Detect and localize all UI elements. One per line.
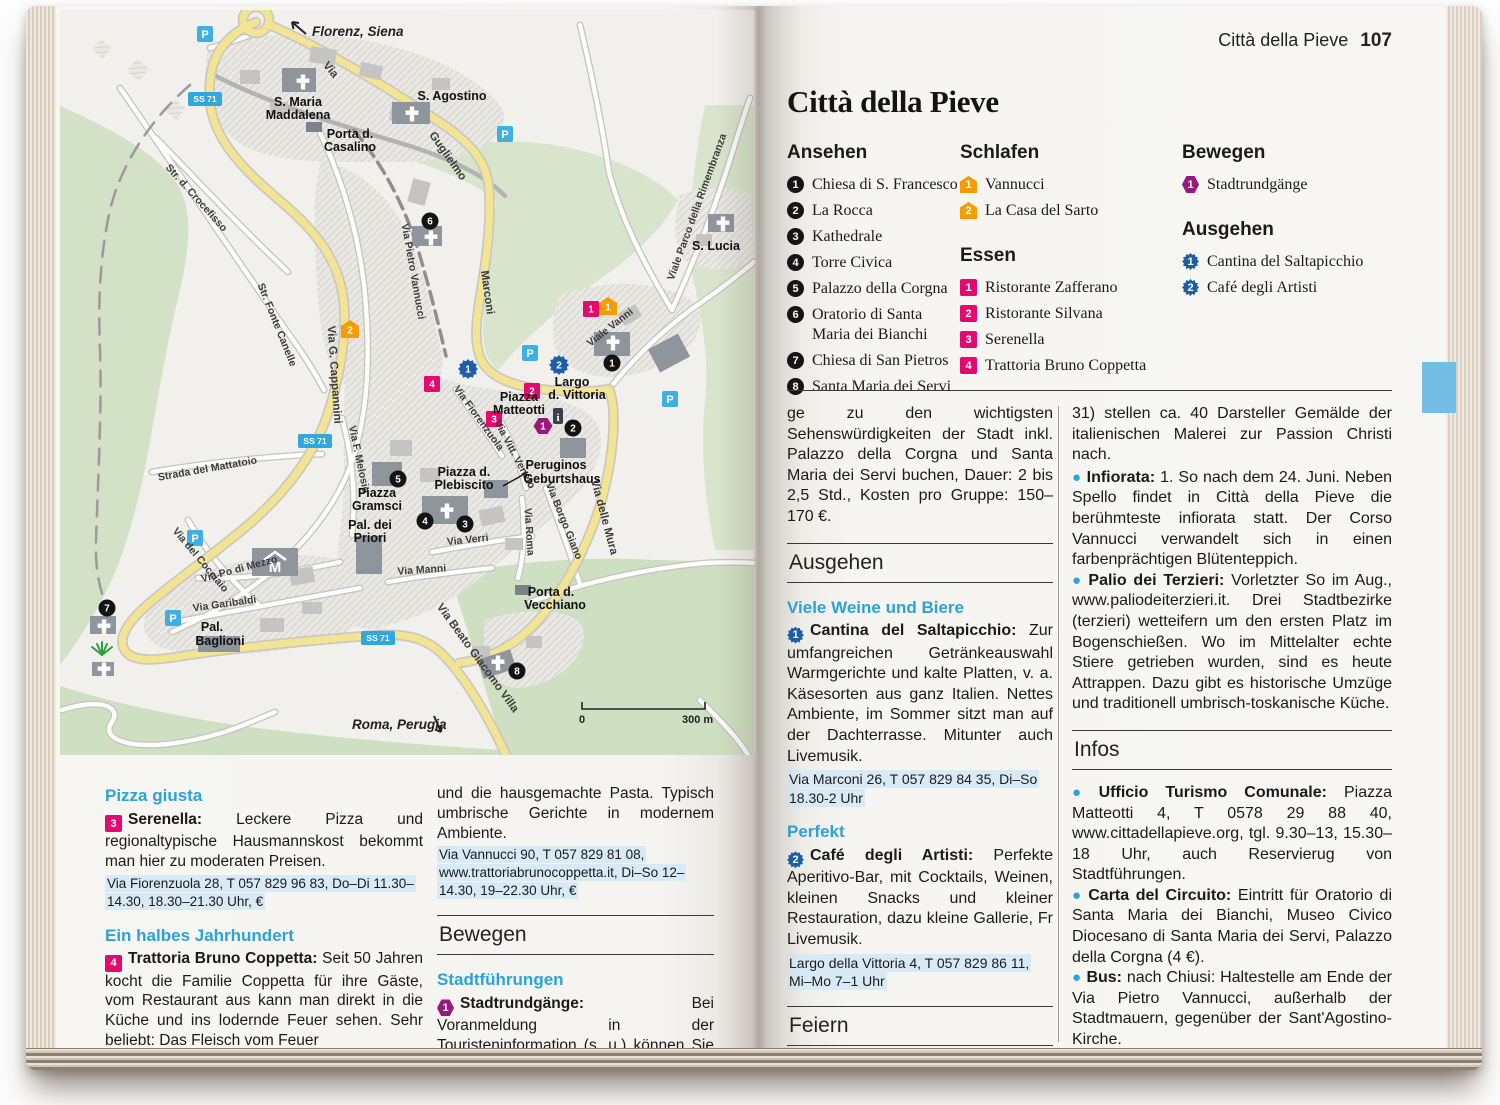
legend-item: 2Ristorante Silvana xyxy=(960,304,1182,324)
svg-text:SS 71: SS 71 xyxy=(193,94,216,104)
restaurant-entry: 3Serenella: Leckere Pizza und regionalty… xyxy=(105,810,423,872)
svg-text:4: 4 xyxy=(429,380,435,391)
bullet-icon: ● xyxy=(1072,469,1082,486)
right-page-column-2: 31) stellen ca. 40 Darsteller Gemälde de… xyxy=(1072,404,1392,1048)
svg-text:8: 8 xyxy=(514,667,520,678)
svg-text:6: 6 xyxy=(427,217,433,228)
section-heading: Feiern xyxy=(787,1006,1053,1046)
legend-item: 3Serenella xyxy=(960,330,1182,350)
essen-badge: 4 xyxy=(105,955,122,972)
teaser-heading: Perfekt xyxy=(787,822,1053,842)
ausgehen-badge: 2 xyxy=(787,851,804,868)
legend-header: Ausgehen xyxy=(1182,219,1392,241)
legend-item: 5Palazzo della Corgna xyxy=(787,279,959,299)
legend-item: 2La Rocca xyxy=(787,201,959,221)
legend-item: 1Ristorante Zafferano xyxy=(960,278,1182,298)
legend-item: 3Kathedrale xyxy=(787,227,959,247)
continued-paragraph: ge zu den wichtigsten Sehenswürdigkeiten… xyxy=(787,404,1053,528)
ausgehen-badge: 1 xyxy=(1182,253,1199,270)
left-page: M i SS 71 SS 71 SS 71 P P P P P xyxy=(56,6,757,1048)
svg-text:3: 3 xyxy=(462,520,468,531)
entry-name: Cantina del Saltapicchio: xyxy=(810,622,1016,639)
svg-text:2: 2 xyxy=(347,326,353,337)
svg-text:Pal. dei: Pal. dei xyxy=(348,518,392,532)
address-line: Via Marconi 26, T 057 829 84 35, Di–So 1… xyxy=(787,770,1053,807)
svg-text:1: 1 xyxy=(540,422,546,433)
schlafen-badge: 2 xyxy=(960,202,977,219)
svg-text:Maddalena: Maddalena xyxy=(266,108,332,122)
teaser-heading: Stadtführungen xyxy=(437,970,714,990)
page-number: 107 xyxy=(1360,30,1392,51)
svg-text:Largo: Largo xyxy=(555,375,590,389)
svg-text:Priori: Priori xyxy=(354,531,387,545)
essen-badge: 2 xyxy=(960,305,977,322)
ausgehen-badge: 1 xyxy=(787,627,804,644)
right-page-column-1: ge zu den wichtigsten Sehenswürdigkeiten… xyxy=(787,404,1053,1048)
bewegen-badge: 1 xyxy=(437,999,454,1016)
event-entry: ●Infiorata: 1. So nach dem 24. Juni. Neb… xyxy=(1072,468,1392,571)
book-scan: M i SS 71 SS 71 SS 71 P P P P P xyxy=(0,0,1500,1105)
tour-entry: 1Stadtrundgänge: Bei Voranmeldung in der… xyxy=(437,994,714,1048)
sehen-badge: 8 xyxy=(787,378,804,395)
sehen-badge: 6 xyxy=(787,306,804,323)
bullet-icon: ● xyxy=(1072,969,1081,986)
section-heading: Infos xyxy=(1072,730,1392,770)
svg-text:0: 0 xyxy=(579,714,585,726)
page-stack-left xyxy=(26,6,56,1048)
info-entry: ●Bus: nach Chiusi: Haltestelle am Ende d… xyxy=(1072,968,1392,1048)
svg-text:Roma, Perugia: Roma, Perugia xyxy=(352,717,447,732)
info-icon: i xyxy=(553,408,563,424)
svg-text:S. Lucia: S. Lucia xyxy=(692,239,741,253)
svg-text:i: i xyxy=(556,412,559,424)
svg-text:P: P xyxy=(666,394,673,406)
right-page: Città della Pieve107 Città della Pieve A… xyxy=(757,6,1446,1048)
svg-text:Matteotti: Matteotti xyxy=(493,403,545,417)
nightlife-entry: 1Cantina del Saltapicchio: Zur umfangrei… xyxy=(787,621,1053,767)
svg-text:Baglioni: Baglioni xyxy=(195,634,244,648)
sehen-badge: 4 xyxy=(787,254,804,271)
legend-bewegen-ausgehen: Bewegen 1Stadtrundgänge Ausgehen 1Cantin… xyxy=(1182,142,1392,304)
svg-text:1: 1 xyxy=(465,365,471,376)
svg-text:Porta d.: Porta d. xyxy=(327,127,374,141)
svg-text:P: P xyxy=(526,348,533,360)
sehen-badge: 1 xyxy=(787,176,804,193)
section-heading: Ausgehen xyxy=(787,543,1053,583)
svg-text:Pal.: Pal. xyxy=(201,620,223,634)
svg-text:7: 7 xyxy=(104,604,110,615)
running-head: Città della Pieve107 xyxy=(787,30,1392,52)
sehen-badge: 7 xyxy=(787,352,804,369)
address-line: Via Vannucci 90, T 057 829 81 08, www.tr… xyxy=(437,846,714,900)
running-head-title: Città della Pieve xyxy=(1218,30,1348,50)
left-page-column-1: Pizza giusta 3Serenella: Leckere Pizza u… xyxy=(105,784,423,1048)
essen-badge: 3 xyxy=(960,331,977,348)
svg-text:P: P xyxy=(201,29,208,41)
svg-text:1: 1 xyxy=(609,359,615,370)
svg-text:Plebiscito: Plebiscito xyxy=(434,478,493,492)
svg-text:P: P xyxy=(501,129,508,141)
sehen-badge: 2 xyxy=(787,202,804,219)
sehen-badge: 3 xyxy=(787,228,804,245)
legend-item: 8Santa Maria dei Servi xyxy=(787,377,959,397)
legend-header: Schlafen xyxy=(960,142,1182,164)
svg-text:S. Agostino: S. Agostino xyxy=(418,89,487,103)
page-title: Città della Pieve xyxy=(787,84,999,120)
legend-item: 2La Casa del Sarto xyxy=(960,201,1182,221)
legend-item: 7Chiesa di San Pietros xyxy=(787,351,959,371)
schlafen-badge: 1 xyxy=(960,176,977,193)
info-entry: ●Carta del Circuito: Eintritt für Orator… xyxy=(1072,886,1392,968)
svg-text:Piazza: Piazza xyxy=(358,486,397,500)
address-line: Largo della Vittoria 4, T 057 829 86 11,… xyxy=(787,954,1053,991)
entry-name: Trattoria Bruno Coppetta: xyxy=(128,950,317,967)
svg-text:1: 1 xyxy=(588,305,594,316)
info-entry: ●Ufficio Turismo Comunale: Piazza Matteo… xyxy=(1072,783,1392,886)
legend-item: 6Oratorio di Santa Maria dei Bianchi xyxy=(787,305,959,345)
section-heading: Bewegen xyxy=(437,915,714,955)
entry-text: Zur umfangreichen Getränkeauswahl Warmge… xyxy=(787,622,1053,764)
essen-badge: 3 xyxy=(105,815,122,832)
legend-item: 4Trattoria Bruno Coppetta xyxy=(960,356,1182,376)
book: M i SS 71 SS 71 SS 71 P P P P P xyxy=(26,6,1482,1070)
svg-text:SS 71: SS 71 xyxy=(303,436,326,446)
nightlife-entry: 2Café degli Artisti: Perfekte Aperitivo-… xyxy=(787,846,1053,951)
legend-item: 1Cantina del Saltapicchio xyxy=(1182,252,1392,272)
svg-text:4: 4 xyxy=(422,517,428,528)
column-divider xyxy=(1058,406,1059,1042)
svg-text:Florenz, Siena: Florenz, Siena xyxy=(312,24,404,39)
legend-item: 1Chiesa di S. Francesco xyxy=(787,175,959,195)
bullet-icon: ● xyxy=(1072,887,1083,904)
page-stack-bottom xyxy=(26,1048,1482,1070)
legend-header: Ansehen xyxy=(787,142,959,164)
restaurant-entry: 4Trattoria Bruno Coppetta: Seit 50 Jahre… xyxy=(105,949,423,1048)
legend-header: Essen xyxy=(960,245,1182,267)
legend-header: Bewegen xyxy=(1182,142,1392,164)
svg-text:300 m: 300 m xyxy=(682,714,713,726)
legend-divider xyxy=(787,390,1392,391)
teaser-heading: Viele Weine und Biere xyxy=(787,598,1053,618)
svg-text:Geburtshaus: Geburtshaus xyxy=(523,472,600,486)
svg-text:Piazza: Piazza xyxy=(500,390,539,404)
svg-text:d. Vittoria: d. Vittoria xyxy=(548,388,606,402)
legend-ansehen: Ansehen 1Chiesa di S. Francesco 2La Rocc… xyxy=(787,142,959,403)
svg-text:Piazza d.: Piazza d. xyxy=(438,465,491,479)
bookmark-tab xyxy=(1422,362,1456,413)
bewegen-badge: 1 xyxy=(1182,176,1199,193)
event-entry: ●Palio dei Terzieri: Vorletzter So im Au… xyxy=(1072,571,1392,715)
sehen-badge: 5 xyxy=(787,280,804,297)
teaser-heading: Pizza giusta xyxy=(105,786,423,806)
bullet-icon: ● xyxy=(1072,784,1094,801)
svg-text:Gramsci: Gramsci xyxy=(352,499,402,513)
page-stack-right xyxy=(1446,6,1482,1048)
essen-badge: 1 xyxy=(960,279,977,296)
svg-text:SS 71: SS 71 xyxy=(366,633,389,643)
legend-item: 2Café degli Artisti xyxy=(1182,278,1392,298)
svg-text:5: 5 xyxy=(395,475,401,486)
left-page-column-2: und die hausgemachte Pasta. Typisch umbr… xyxy=(437,784,714,1048)
svg-text:Porta d.: Porta d. xyxy=(528,585,575,599)
legend-item: 1Stadtrundgänge xyxy=(1182,175,1392,195)
essen-badge: 4 xyxy=(960,357,977,374)
entry-name: Café degli Artisti: xyxy=(810,847,973,864)
legend-item: 4Torre Civica xyxy=(787,253,959,273)
ausgehen-badge: 2 xyxy=(1182,279,1199,296)
city-map: M i SS 71 SS 71 SS 71 P P P P P xyxy=(60,10,755,755)
legend-schlafen-essen: Schlafen 1Vannucci 2La Casa del Sarto Es… xyxy=(960,142,1182,382)
svg-text:2: 2 xyxy=(570,424,576,435)
svg-text:2: 2 xyxy=(556,361,562,372)
teaser-heading: Ein halbes Jahrhundert xyxy=(105,926,423,946)
continued-paragraph: und die hausgemachte Pasta. Typisch umbr… xyxy=(437,784,714,843)
entry-name: Serenella: xyxy=(128,811,202,828)
svg-text:Casalino: Casalino xyxy=(324,140,376,154)
svg-text:1: 1 xyxy=(605,303,611,314)
continued-paragraph: 31) stellen ca. 40 Darsteller Gemälde de… xyxy=(1072,404,1392,466)
legend-item: 1Vannucci xyxy=(960,175,1182,195)
entry-name: Stadtrundgänge: xyxy=(460,995,584,1012)
svg-text:Vecchiano: Vecchiano xyxy=(524,598,586,612)
svg-text:P: P xyxy=(169,613,176,625)
svg-text:S. Maria: S. Maria xyxy=(274,95,323,109)
svg-text:Peruginos: Peruginos xyxy=(525,458,586,472)
bullet-icon: ● xyxy=(1072,572,1083,589)
address-line: Via Fiorenzuola 28, T 057 829 96 83, Do–… xyxy=(105,875,423,911)
